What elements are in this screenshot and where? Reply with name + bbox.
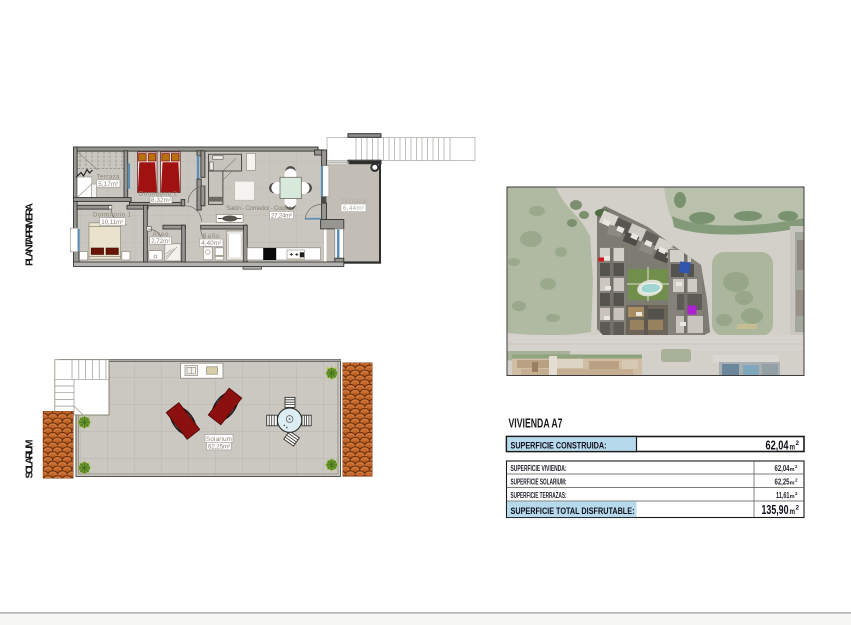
- svg-text:8,32m²: 8,32m²: [151, 197, 171, 204]
- svg-text:PLANTA PRIMERA: PLANTA PRIMERA: [24, 203, 36, 266]
- svg-text:5,17m²: 5,17m²: [98, 181, 118, 188]
- svg-text:2,72m²: 2,72m²: [151, 239, 170, 245]
- svg-text:4,40m²: 4,40m²: [201, 240, 221, 247]
- svg-text:Terraza: Terraza: [97, 174, 121, 181]
- svg-text:135,90: 135,90: [762, 502, 789, 517]
- svg-text:m: m: [790, 481, 795, 487]
- svg-text:m: m: [790, 467, 795, 473]
- svg-text:VIVIENDA A7: VIVIENDA A7: [509, 416, 563, 431]
- svg-text:SUPERFICIE SOLARIUM:: SUPERFICIE SOLARIUM:: [511, 478, 567, 487]
- svg-text:SOLARIUM: SOLARIUM: [24, 439, 36, 478]
- svg-text:SUPERFICIE TERRAZAS:: SUPERFICIE TERRAZAS:: [511, 491, 567, 500]
- svg-text:27,24m²: 27,24m²: [271, 213, 292, 220]
- svg-text:Solarium: Solarium: [206, 436, 232, 443]
- svg-text:m: m: [790, 506, 796, 516]
- svg-text:10,11m²: 10,11m²: [101, 219, 123, 226]
- svg-text:SUPERFICIE VIVIENDA:: SUPERFICIE VIVIENDA:: [511, 464, 567, 473]
- svg-text:62,04: 62,04: [775, 463, 790, 473]
- svg-text:6,44m²: 6,44m²: [343, 205, 364, 212]
- svg-text:11,61: 11,61: [776, 490, 790, 500]
- svg-text:m: m: [790, 494, 795, 500]
- svg-text:62,04: 62,04: [766, 437, 790, 452]
- svg-text:SUPERFICIE TOTAL DISFRUTABLE:: SUPERFICIE TOTAL DISFRUTABLE:: [511, 506, 635, 517]
- svg-text:m: m: [790, 441, 796, 451]
- svg-text:62,25: 62,25: [775, 477, 790, 487]
- svg-text:SUPERFICIE CONSTRUIDA:: SUPERFICIE CONSTRUIDA:: [511, 441, 607, 452]
- svg-text:62,25m²: 62,25m²: [208, 444, 230, 451]
